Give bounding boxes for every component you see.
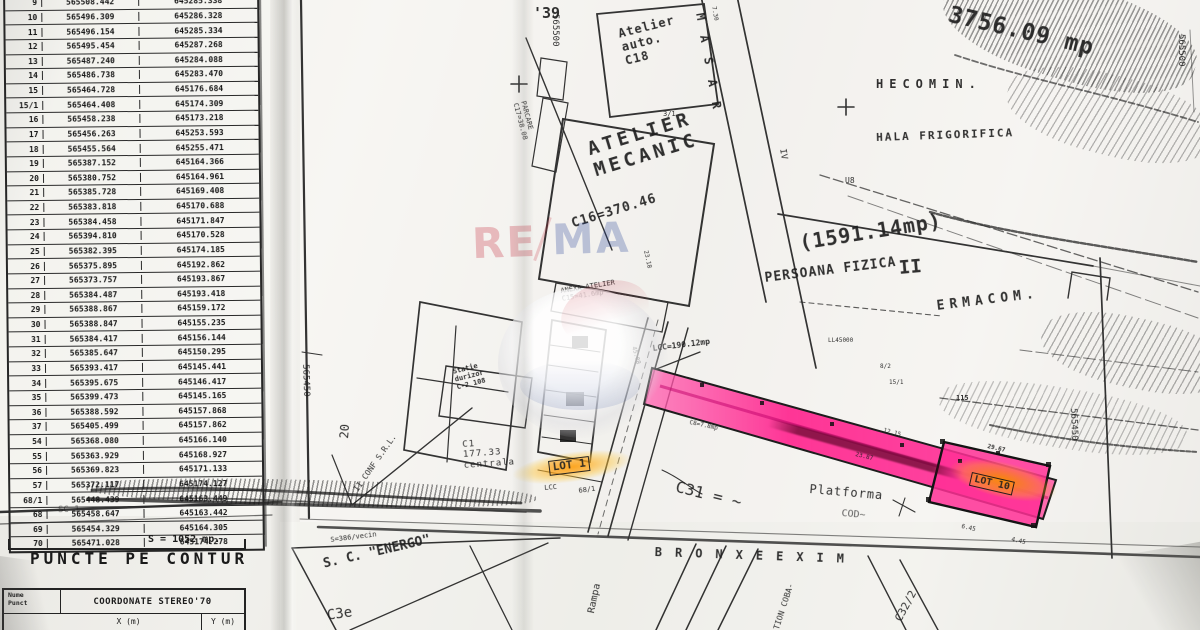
table-cell-n: 13 (6, 57, 43, 66)
table-cell-n: 28 (8, 291, 45, 300)
map-label-d-4-45: 4.45 (1010, 537, 1026, 547)
contour-title: PUNCTE PE CONTUR (30, 549, 248, 568)
table-cell-n: 57 (10, 481, 47, 490)
map-label-platforma: Platforma (809, 483, 884, 503)
map-label-d-12-15: 12.15 (882, 428, 901, 439)
table-cell-n: 25 (8, 247, 45, 256)
map-label-ermacom: ERMACOM. (936, 287, 1040, 314)
table-cell-y: 645169.408 (141, 186, 259, 196)
table-cell-y: 645174.185 (142, 245, 260, 255)
table-cell-x: 565388.592 (46, 407, 143, 417)
map-label-d-23-87: 23.87 (854, 452, 873, 463)
map-label-s-386: S=386/vecin (330, 530, 377, 544)
scanned-cadastral-plan: '39Atelier auto. C18M A S A R56550056550… (0, 0, 1200, 630)
table-cell-n: 30 (8, 320, 45, 329)
map-label-d-8-2: 8/2 (880, 364, 891, 371)
subtable-col-nume-punct: Nume Punct (4, 590, 61, 613)
map-label-d-29-67: 29.67 (986, 444, 1005, 455)
area-note: S = 1052 mp. (148, 534, 220, 545)
table-cell-x: 565496.309 (42, 12, 139, 22)
table-cell-x: 565387.152 (44, 158, 141, 168)
table-cell-y: 645285.338 (139, 0, 257, 6)
table-cell-y: 645192.862 (142, 259, 260, 269)
table-cell-n: 16 (6, 115, 43, 124)
table-cell-n: 29 (8, 305, 45, 314)
table-cell-y: 645163.449 (144, 493, 262, 503)
table-cell-n: 10 (5, 13, 42, 22)
map-label-d-c8: C8=7.8mp (689, 420, 719, 433)
map-label-c31: C31 = ~ (674, 478, 744, 512)
table-cell-x: 565388.867 (45, 304, 142, 314)
table-cell-n: 23 (7, 218, 44, 227)
coordinates-table: 9565508.442645285.33810565496.309645286.… (3, 0, 265, 553)
map-label-cod: COD~ (841, 508, 866, 522)
table-cell-y: 645159.172 (142, 303, 260, 313)
table-cell-n: 15 (6, 86, 43, 95)
table-cell-y: 645193.418 (142, 288, 260, 298)
table-cell-x: 565395.675 (46, 377, 143, 387)
table-cell-y: 645157.862 (144, 420, 262, 430)
map-label-persoana-fizica: PERSOANA FIZICA (764, 256, 897, 287)
table-cell-n: 37 (10, 422, 47, 431)
table-cell-x: 565372.117 (47, 480, 144, 490)
map-label-lot-10: LOT 10 (969, 472, 1015, 495)
table-cell-y: 645145.165 (143, 391, 261, 401)
table-cell-n: 55 (10, 452, 47, 461)
contour-subtable: Nume Punct COORDONATE STEREO'70 X (m) Y … (2, 588, 246, 630)
table-cell-y: 645145.441 (143, 362, 261, 372)
table-cell-n: 35 (9, 393, 46, 402)
map-label-coba: TION COBA- (772, 582, 796, 630)
table-cell-y: 645168.927 (144, 449, 262, 459)
table-cell-x: 565464.408 (43, 100, 140, 110)
table-cell-x: 565448.439 (47, 494, 144, 504)
map-label-roman-iv: IV (777, 148, 789, 160)
map-label-statie: Statie durizor C-2 108 (452, 361, 486, 392)
table-cell-x: 565508.442 (42, 0, 139, 7)
map-label-d-6-45: 6.45 (960, 524, 976, 534)
table-cell-y: 645287.268 (140, 40, 258, 50)
subtable-col-x: X (m) (56, 614, 202, 630)
table-cell-n: 26 (8, 261, 45, 270)
table-cell-n: 31 (9, 335, 46, 344)
map-label-parcare-c17: PARCARE C17=38.08 (511, 100, 536, 141)
map-label-rampa: Rampa (586, 583, 604, 615)
map-label-n68-1: 68/1 (578, 485, 596, 495)
table-cell-y: 645173.218 (140, 113, 258, 123)
map-label-grid-565500-left: 565500 (550, 14, 560, 47)
table-cell-n: 19 (7, 159, 44, 168)
map-label-grid-565450-right: 565450 (1068, 408, 1079, 441)
map-label-area-3756: 3756.09 mp (946, 2, 1097, 61)
subtable-col-y: Y (m) (202, 614, 244, 630)
table-cell-y: 645156.144 (143, 332, 261, 342)
table-cell-n: 9 (5, 0, 42, 8)
table-cell-x: 565380.752 (44, 173, 141, 183)
map-label-c32-2: C32/2 (893, 589, 920, 624)
table-cell-x: 565384.458 (44, 217, 141, 227)
table-cell-x: 565384.487 (45, 290, 142, 300)
map-label-d-7-30: 7.30 (709, 6, 718, 21)
table-cell-x: 565487.240 (43, 56, 140, 66)
table-cell-x: 565393.417 (46, 363, 143, 373)
table-cell-y: 645284.088 (140, 55, 258, 65)
map-label-area-1591: (1591.14mp) (798, 210, 943, 255)
table-cell-n: 11 (5, 28, 42, 37)
map-label-ll45000: LL45000 (828, 338, 853, 345)
table-cell-x: 565368.080 (47, 436, 144, 446)
map-label-street-masarie: M A S A R (692, 12, 723, 114)
map-label-d-23-18: 23.18 (641, 250, 651, 269)
table-cell-n: 18 (7, 145, 44, 154)
table-cell-y: 645170.688 (141, 201, 259, 211)
map-label-lot-1: LOT 1 (548, 456, 591, 476)
map-label-grid-565450-left: 565450 (300, 364, 311, 397)
table-cell-y: 645166.140 (144, 435, 262, 445)
table-cell-y: 645174.309 (140, 98, 258, 108)
table-cell-x: 565458.238 (43, 114, 140, 124)
table-cell-y: 645164.366 (141, 157, 259, 167)
table-cell-x: 565363.929 (47, 451, 144, 461)
table-cell-x: 565375.895 (45, 260, 142, 270)
table-cell-y: 645155.235 (142, 318, 260, 328)
table-cell-y: 645163.442 (144, 508, 262, 518)
table-cell-n: 34 (9, 378, 46, 387)
table-cell-y: 645255.471 (141, 142, 259, 152)
table-cell-y: 645283.470 (140, 69, 258, 79)
table-cell-n: 27 (8, 276, 45, 285)
table-cell-n: 36 (9, 408, 46, 417)
table-cell-x: 565405.499 (47, 421, 144, 431)
table-cell-x: 565383.818 (44, 202, 141, 212)
table-cell-x: 565456.263 (44, 129, 141, 139)
map-label-hala-frigorifica: HALA FRIGORIFICA (876, 127, 1014, 144)
table-cell-x: 565388.847 (45, 319, 142, 329)
map-label-d-115: 115 (956, 394, 969, 402)
table-cell-y: 645150.295 (143, 347, 261, 357)
table-cell-y: 645146.417 (143, 376, 261, 386)
table-cell-n: 20 (7, 174, 44, 183)
map-label-u8: U8 (845, 176, 855, 185)
table-cell-n: 17 (7, 130, 44, 139)
table-cell-x: 565373.757 (45, 275, 142, 285)
table-cell-x: 565399.473 (46, 392, 143, 402)
map-label-hecomin: HECOMIN. (876, 78, 982, 92)
watermark-balloon-blue (520, 360, 640, 410)
table-cell-n: 33 (9, 364, 46, 373)
table-cell-y: 645174.127 (144, 479, 262, 489)
map-label-grid-565500-right: 565500 (1176, 34, 1186, 67)
subtable-col-coordonate: COORDONATE STEREO'70 (61, 590, 244, 613)
map-label-d-3-1: 3/1 (663, 110, 676, 118)
table-cell-y: 645170.528 (142, 230, 260, 240)
table-cell-x: 565385.647 (46, 348, 143, 358)
map-label-atelier-mecanic: ATELIER MECANIC (585, 108, 701, 181)
table-cell-n: 32 (9, 349, 46, 358)
map-label-atelier-auto: Atelier auto. C18 (617, 14, 683, 68)
table-cell-y: 645171.847 (141, 215, 259, 225)
table-cell-x: 565496.154 (42, 26, 139, 36)
table-cell-x: 565495.454 (43, 41, 140, 51)
table-cell-n: 14 (6, 71, 43, 80)
table-cell-n: 21 (7, 188, 44, 197)
table-cell-n: 54 (10, 437, 47, 446)
table-cell-n: 22 (7, 203, 44, 212)
table-cell-x: 565486.738 (43, 70, 140, 80)
table-cell-x: 565394.810 (45, 231, 142, 241)
table-cell-y: 645171.133 (144, 464, 262, 474)
table-cell-x: 565464.728 (43, 85, 140, 95)
table-cell-x: 565369.823 (47, 465, 144, 475)
table-cell-y: 645176.684 (140, 84, 258, 94)
map-label-lcc-small: LCC (544, 483, 557, 492)
table-cell-x: 565382.395 (45, 246, 142, 256)
table-cell-y: 645285.334 (139, 25, 257, 35)
map-label-persoana-ii: II (898, 256, 923, 280)
note-prefix: SC 1 (58, 505, 80, 515)
table-cell-y: 645193.867 (142, 274, 260, 284)
map-label-bronxeexim: BRONXEEXIM (655, 546, 858, 567)
table-cell-y: 645157.868 (143, 405, 261, 415)
map-label-ii-conf: II CONF S.R.L. (352, 433, 398, 494)
map-label-no-20: 20 (338, 424, 353, 440)
table-cell-x: 565455.564 (44, 143, 141, 153)
table-cell-n: 68/1 (10, 495, 47, 504)
table-cell-y: 645253.593 (140, 128, 258, 138)
map-label-c1-centrala: C1 177.33 centrala (462, 436, 515, 471)
table-cell-n: 15/1 (6, 101, 43, 110)
map-label-c16: C16=370.46 (570, 192, 659, 232)
table-cell-n: 56 (10, 466, 47, 475)
map-label-c3e: C3e (326, 604, 353, 623)
table-cell-x: 565385.728 (44, 187, 141, 197)
table-cell-y: 645286.328 (139, 11, 257, 21)
table-cell-n: 12 (6, 42, 43, 51)
table-cell-y: 645164.961 (141, 171, 259, 181)
table-cell-n: 24 (8, 232, 45, 241)
map-label-d-15-1: 15/1 (889, 380, 903, 387)
table-cell-n: 68 (10, 510, 47, 519)
table-cell-x: 565384.417 (46, 334, 143, 344)
